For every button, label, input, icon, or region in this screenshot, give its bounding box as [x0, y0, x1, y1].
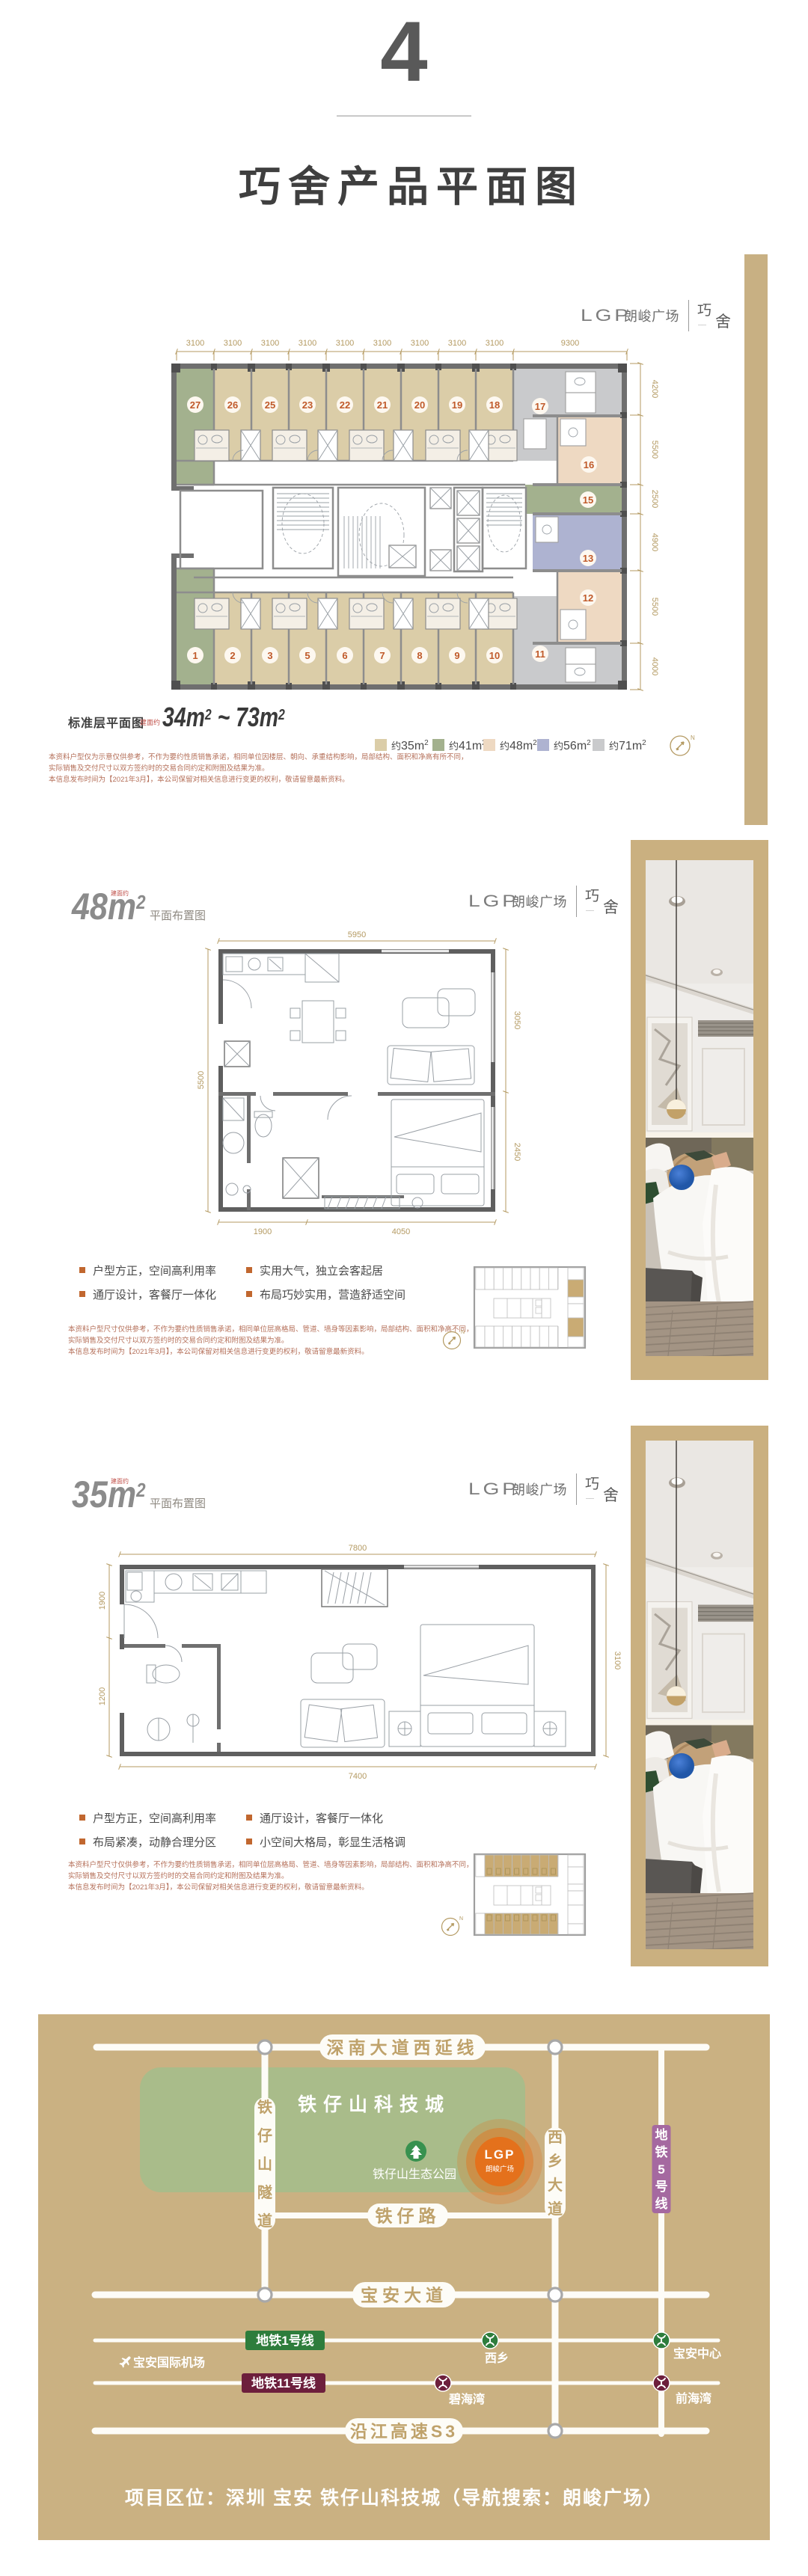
svg-text:约41m2: 约41m2 [449, 739, 486, 752]
svg-text:3100: 3100 [299, 339, 316, 348]
svg-text:N: N [459, 1916, 463, 1922]
svg-text:10: 10 [489, 650, 500, 661]
svg-text:17: 17 [535, 401, 545, 412]
svg-text:21: 21 [377, 399, 388, 411]
svg-text:3100: 3100 [448, 339, 466, 348]
svg-text:2: 2 [230, 650, 235, 661]
svg-text:大: 大 [548, 2177, 563, 2194]
svg-text:1: 1 [192, 650, 198, 661]
svg-text:N: N [461, 1330, 465, 1335]
svg-text:9300: 9300 [561, 339, 579, 348]
svg-text:乡: 乡 [548, 2153, 563, 2170]
svg-text:15: 15 [583, 494, 593, 506]
svg-text:朗峻广场: 朗峻广场 [486, 2165, 514, 2174]
svg-text:18: 18 [489, 399, 500, 411]
svg-text:山: 山 [257, 2156, 272, 2173]
svg-text:12: 12 [583, 592, 593, 604]
svg-text:5500: 5500 [197, 1071, 206, 1089]
svg-text:3100: 3100 [336, 339, 354, 348]
svg-text:宝安大道: 宝安大道 [361, 2285, 447, 2304]
svg-text:铁: 铁 [257, 2098, 272, 2116]
svg-text:3: 3 [267, 650, 272, 661]
svg-text:9: 9 [454, 650, 459, 661]
svg-text:3050: 3050 [512, 1011, 521, 1029]
svg-text:隧: 隧 [257, 2183, 272, 2201]
svg-text:约71m2: 约71m2 [609, 739, 646, 752]
svg-text:7800: 7800 [349, 1544, 367, 1553]
svg-text:26: 26 [227, 399, 238, 411]
svg-text:约35m2: 约35m2 [391, 739, 429, 752]
svg-text:7: 7 [379, 650, 385, 661]
svg-text:11: 11 [535, 648, 545, 660]
svg-text:19: 19 [452, 399, 462, 411]
svg-text:4050: 4050 [392, 1227, 410, 1236]
svg-text:7400: 7400 [349, 1772, 367, 1781]
svg-text:25: 25 [265, 399, 275, 411]
svg-text:道: 道 [548, 2200, 563, 2218]
svg-text:27: 27 [190, 399, 201, 411]
svg-text:5500: 5500 [650, 441, 659, 459]
svg-text:地铁11号线: 地铁11号线 [251, 2376, 316, 2391]
svg-text:4200: 4200 [650, 380, 659, 398]
svg-text:深南大道西延线: 深南大道西延线 [327, 2037, 479, 2057]
svg-text:碧海湾: 碧海湾 [448, 2392, 485, 2406]
svg-text:宝安中心: 宝安中心 [673, 2346, 721, 2361]
svg-text:仔: 仔 [257, 2126, 272, 2144]
svg-text:5: 5 [658, 2162, 664, 2177]
svg-text:铁仔路: 铁仔路 [376, 2206, 441, 2225]
svg-text:3100: 3100 [224, 339, 242, 348]
svg-text:6: 6 [342, 650, 347, 661]
svg-text:地铁1号线: 地铁1号线 [256, 2333, 313, 2348]
svg-text:4900: 4900 [650, 533, 659, 551]
svg-text:13: 13 [583, 553, 593, 564]
svg-text:前海湾: 前海湾 [676, 2391, 711, 2405]
svg-text:4000: 4000 [650, 657, 659, 675]
svg-text:LGP: LGP [485, 2147, 515, 2162]
svg-text:16: 16 [584, 459, 594, 470]
svg-text:约48m2: 约48m2 [500, 739, 537, 752]
svg-text:5500: 5500 [650, 598, 659, 616]
svg-text:西: 西 [548, 2129, 563, 2146]
svg-text:线: 线 [655, 2196, 668, 2211]
svg-text:约56m2: 约56m2 [554, 739, 591, 752]
svg-text:沿江高速S3: 沿江高速S3 [350, 2421, 458, 2441]
svg-text:23: 23 [302, 399, 313, 411]
svg-text:3100: 3100 [613, 1652, 622, 1669]
svg-text:3100: 3100 [373, 339, 391, 348]
svg-text:5950: 5950 [348, 930, 366, 939]
svg-text:宝安国际机场: 宝安国际机场 [133, 2355, 205, 2370]
svg-text:号: 号 [655, 2180, 668, 2194]
svg-text:20: 20 [414, 399, 425, 411]
svg-text:2500: 2500 [650, 490, 659, 508]
svg-text:8: 8 [417, 650, 422, 661]
svg-text:项目区位：深圳 宝安 铁仔山科技城（导航搜索：朗峻广场）: 项目区位：深圳 宝安 铁仔山科技城（导航搜索：朗峻广场） [125, 2487, 664, 2509]
svg-text:3100: 3100 [186, 339, 204, 348]
svg-text:1900: 1900 [98, 1592, 107, 1610]
svg-text:22: 22 [340, 399, 350, 411]
svg-text:铁: 铁 [655, 2144, 668, 2159]
svg-text:西乡: 西乡 [485, 2352, 509, 2365]
svg-text:2450: 2450 [512, 1143, 521, 1161]
svg-text:1900: 1900 [254, 1227, 272, 1236]
svg-text:N: N [691, 735, 695, 741]
svg-text:3100: 3100 [411, 339, 429, 348]
svg-text:3100: 3100 [486, 339, 504, 348]
svg-text:3100: 3100 [261, 339, 279, 348]
svg-text:5: 5 [304, 650, 310, 661]
svg-text:铁仔山科技城: 铁仔山科技城 [298, 2094, 450, 2115]
svg-text:地: 地 [655, 2127, 668, 2142]
svg-text:1200: 1200 [98, 1687, 107, 1705]
svg-text:道: 道 [257, 2212, 272, 2230]
svg-text:铁仔山生态公园: 铁仔山生态公园 [373, 2168, 456, 2181]
